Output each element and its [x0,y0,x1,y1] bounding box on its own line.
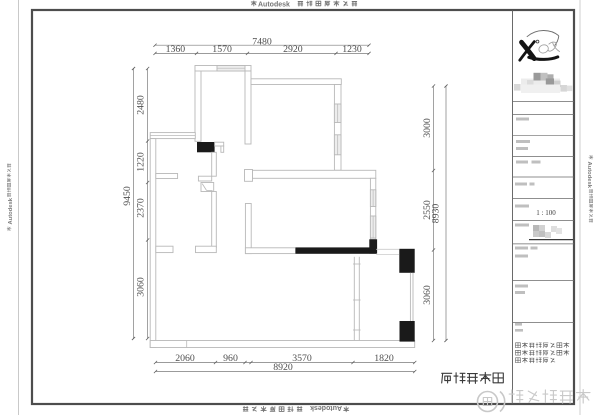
svg-text:8920: 8920 [273,362,293,373]
svg-text:2480: 2480 [136,95,147,115]
svg-text:2920: 2920 [283,44,303,55]
svg-text:1570: 1570 [212,44,232,55]
svg-text:1230: 1230 [342,44,362,55]
svg-text:960: 960 [223,353,238,364]
svg-text:Autodesk: Autodesk [258,1,290,8]
svg-text:Autodesk: Autodesk [586,162,592,189]
svg-text:3000: 3000 [422,118,433,138]
svg-text:2370: 2370 [136,198,147,218]
svg-text:1220: 1220 [136,152,147,172]
svg-text:8930: 8930 [430,204,441,224]
svg-text:3570: 3570 [292,353,312,364]
svg-text:1360: 1360 [166,44,186,55]
svg-text:7480: 7480 [252,36,272,47]
svg-text:3060: 3060 [422,285,433,305]
svg-text:2060: 2060 [175,353,195,364]
svg-text:3060: 3060 [136,277,147,297]
svg-text:Autodesk: Autodesk [310,404,342,411]
svg-text:Autodesk: Autodesk [8,197,14,224]
svg-text:1 : 100: 1 : 100 [536,209,556,217]
svg-text:1820: 1820 [374,353,394,364]
svg-text:9450: 9450 [122,186,133,206]
